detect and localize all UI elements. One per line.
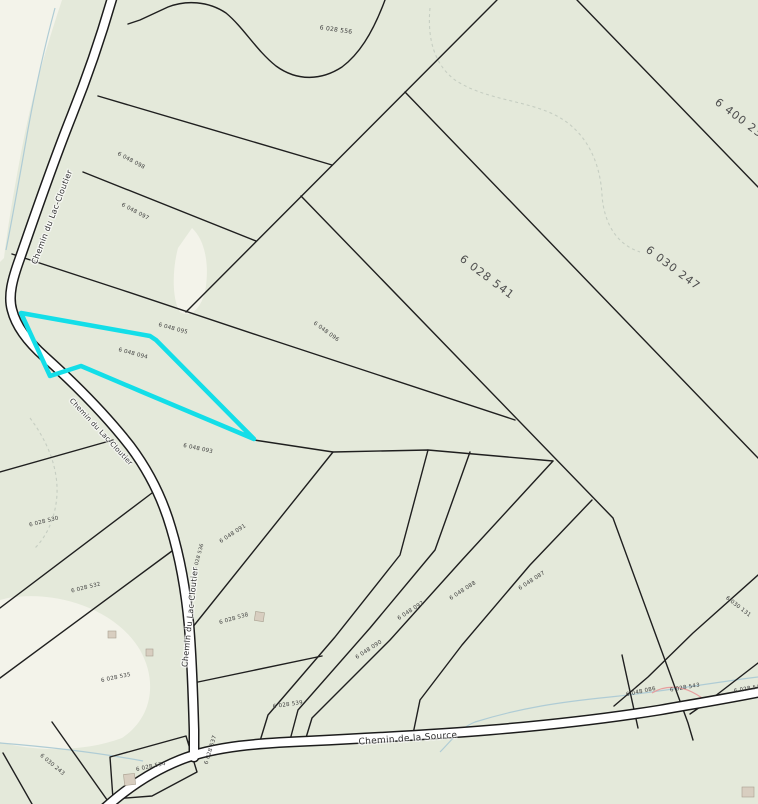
map-canvas	[0, 0, 758, 804]
map-viewport[interactable]: 6 028 5566 400 236 030 2476 028 5416 048…	[0, 0, 758, 804]
